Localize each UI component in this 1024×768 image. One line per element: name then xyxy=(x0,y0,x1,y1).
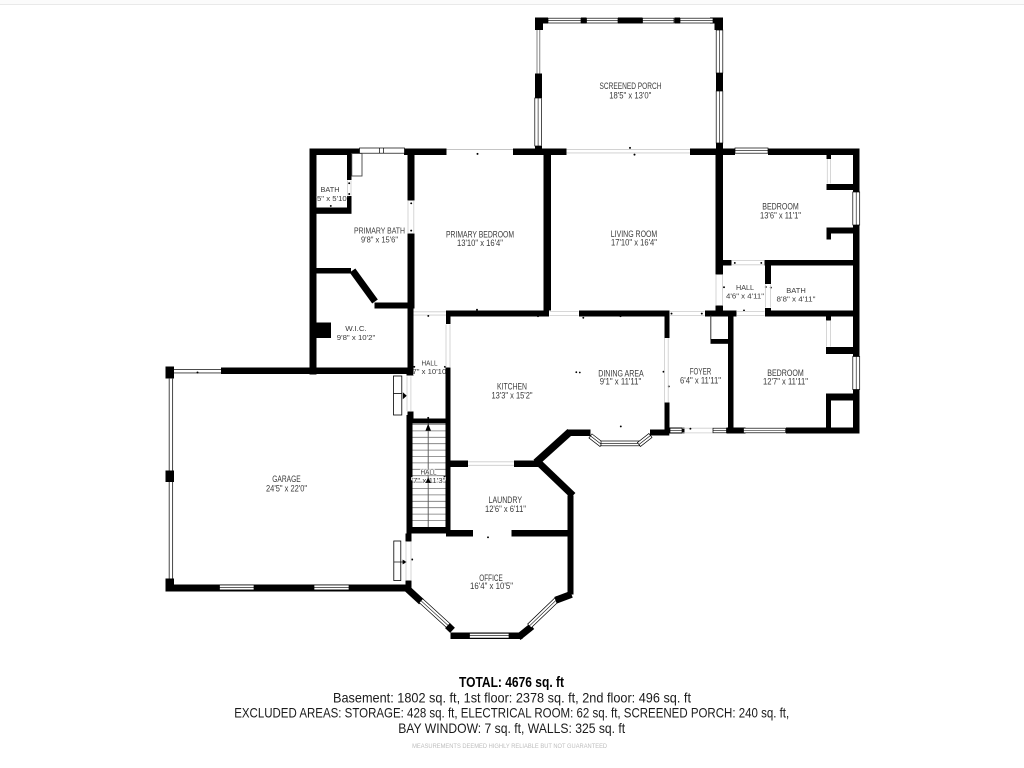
svg-text:9'8" x 15'6": 9'8" x 15'6" xyxy=(361,235,398,245)
svg-text:17'10" x 16'4": 17'10" x 16'4" xyxy=(611,238,657,248)
svg-text:13'6" x 11'1": 13'6" x 11'1" xyxy=(760,211,801,221)
svg-text:4'6" x 4'11": 4'6" x 4'11" xyxy=(726,292,764,301)
svg-text:Basement: 1802 sq. ft, 1st flo: Basement: 1802 sq. ft, 1st floor: 2378 s… xyxy=(333,689,691,705)
svg-text:13'10" x 16'4": 13'10" x 16'4" xyxy=(457,238,503,248)
svg-text:18'5" x 13'0": 18'5" x 13'0" xyxy=(609,91,651,102)
svg-text:24'5" x 22'0": 24'5" x 22'0" xyxy=(266,483,307,493)
svg-text:9'8" x 10'2": 9'8" x 10'2" xyxy=(337,333,376,342)
svg-text:W.I.C.: W.I.C. xyxy=(345,324,367,333)
svg-text:BATH: BATH xyxy=(321,187,340,194)
svg-text:12'6" x 6'11": 12'6" x 6'11" xyxy=(485,504,526,514)
svg-text:16'4" x 10'5": 16'4" x 10'5" xyxy=(470,581,513,591)
svg-text:6'4" x 11'11": 6'4" x 11'11" xyxy=(680,375,721,385)
svg-text:MEASUREMENTS DEEMED HIGHLY REL: MEASUREMENTS DEEMED HIGHLY RELIABLE BUT … xyxy=(412,743,607,750)
svg-text:13'3" x 15'2": 13'3" x 15'2" xyxy=(492,390,533,400)
svg-text:EXCLUDED AREAS: STORAGE: 428 s: EXCLUDED AREAS: STORAGE: 428 sq. ft, ELE… xyxy=(234,705,789,721)
svg-text:8'8" x 4'11": 8'8" x 4'11" xyxy=(777,295,816,304)
svg-text:BAY WINDOW: 7 sq. ft, WALLS: 3: BAY WINDOW: 7 sq. ft, WALLS: 325 sq. ft xyxy=(398,720,625,736)
svg-text:'5" x 5'10": '5" x 5'10" xyxy=(316,196,351,203)
svg-text:9'1" x 11'11": 9'1" x 11'11" xyxy=(600,377,642,387)
svg-text:12'7" x 11'11": 12'7" x 11'11" xyxy=(763,377,808,387)
svg-text:'7" x 10'10": '7" x 10'10" xyxy=(411,367,449,376)
